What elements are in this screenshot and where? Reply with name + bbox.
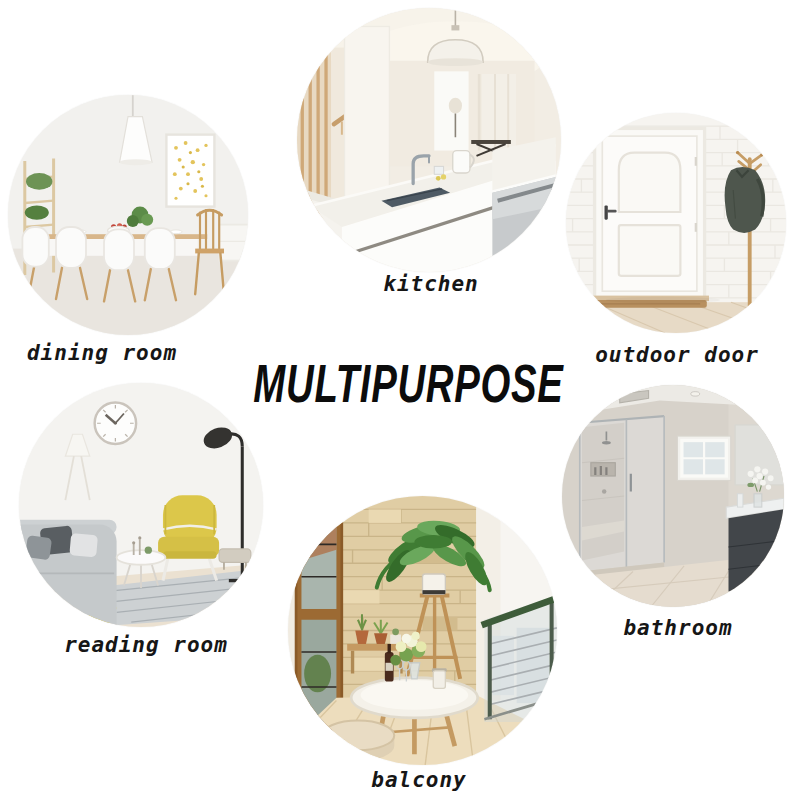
reading-room-photo — [19, 383, 263, 627]
balcony-label: balcony — [269, 769, 569, 792]
balcony-photo — [288, 496, 557, 765]
reading-room-illustration — [19, 383, 263, 627]
door — [595, 128, 705, 297]
glass-shower-enclosure — [580, 416, 664, 578]
balcony-illustration — [288, 496, 557, 765]
kitchen-photo — [297, 8, 561, 272]
wall-art — [166, 135, 214, 207]
kitchen-illustration — [297, 8, 561, 272]
column — [345, 26, 390, 198]
hanging-jacket — [725, 167, 766, 233]
outdoor-door-illustration — [566, 113, 786, 333]
page-title: MULTIPURPOSE — [254, 356, 564, 410]
dining-room-illustration — [8, 95, 248, 335]
sofa — [19, 520, 117, 627]
outdoor-door-photo — [566, 113, 786, 333]
balcony-window — [288, 504, 342, 733]
vanity — [726, 498, 784, 591]
dining-room-photo — [8, 95, 248, 335]
bathroom-illustration — [562, 385, 784, 607]
reading-room-label: reading room — [0, 634, 296, 657]
kitchen-label: kitchen — [281, 273, 581, 296]
dishwasher — [492, 137, 555, 258]
bathroom-photo — [562, 385, 784, 607]
bathroom-label: bathroom — [528, 617, 794, 640]
page-title-wrap: MULTIPURPOSE — [24, 356, 794, 410]
window — [677, 436, 730, 480]
stool — [322, 721, 395, 761]
stairs-wood-slats — [297, 34, 345, 219]
sideboard — [219, 225, 248, 261]
